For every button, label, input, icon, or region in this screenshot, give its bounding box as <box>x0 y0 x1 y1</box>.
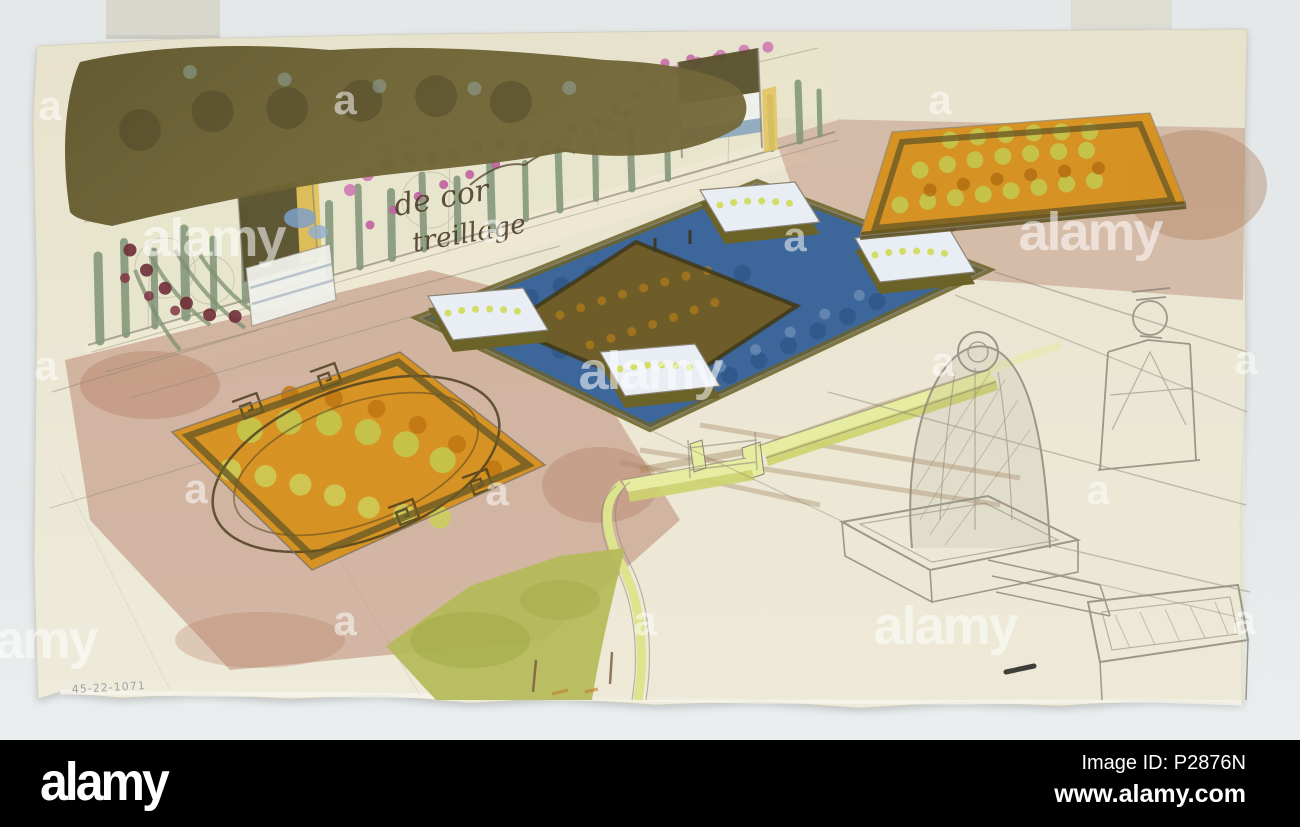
alamy-logo: alamy <box>40 750 167 813</box>
stock-photo-page: de cor treillage <box>0 0 1300 827</box>
footer-bar: alamy Image ID: P2876N www.alamy.com <box>0 740 1300 827</box>
artwork-drawing: de cor treillage <box>0 0 1300 740</box>
tape-top-left <box>106 0 220 39</box>
blue-flowers <box>284 208 316 228</box>
website-url: www.alamy.com <box>1054 780 1246 809</box>
footer-info: Image ID: P2876N www.alamy.com <box>1054 752 1246 809</box>
image-id: Image ID: P2876N <box>1054 752 1246 775</box>
